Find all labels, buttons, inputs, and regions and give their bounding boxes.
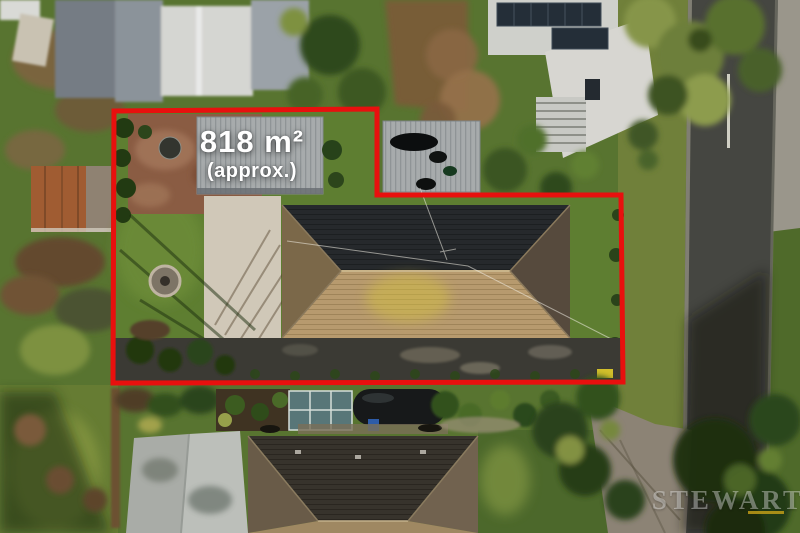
area-value: 818 m² bbox=[150, 125, 354, 159]
main-house-roof bbox=[282, 205, 570, 338]
watermark-gold-underline bbox=[748, 511, 784, 514]
excluded-carport-roof bbox=[383, 121, 480, 196]
grey-gable-roof bbox=[126, 434, 189, 533]
aerial-property-photo: 818 m² (approx.) STEWART bbox=[0, 0, 800, 533]
area-label: 818 m² (approx.) bbox=[150, 125, 354, 183]
area-qualifier: (approx.) bbox=[150, 160, 354, 183]
bottom-neighbour-roof bbox=[248, 436, 478, 533]
aerial-photo-scene bbox=[0, 0, 800, 533]
rear-driveway-strip bbox=[113, 338, 621, 382]
solar-panels bbox=[497, 3, 601, 26]
